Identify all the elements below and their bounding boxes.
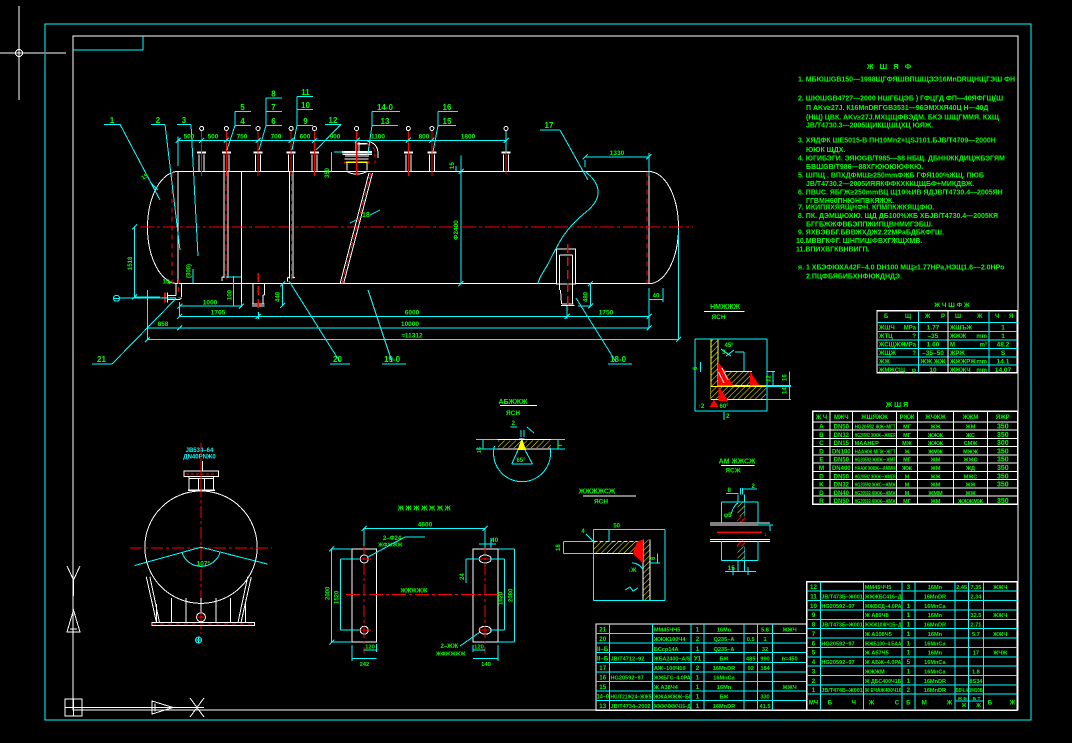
svg-text:4. ЮГИБЭГИ. ЭЯЮGB/T985—88 НБЩ.: 4. ЮГИБЭГИ. ЭЯЮGB/T985—88 НБЩ. ДБННЖКДИЦ… [798, 156, 1005, 163]
svg-text:ЖЩЖ: ЖЩЖ [878, 351, 897, 357]
svg-text:15: 15 [599, 684, 606, 691]
svg-text:ЖЖЖ: ЖЖЖ [927, 441, 944, 447]
svg-text:3: 3 [907, 584, 911, 591]
svg-text:МААНЕР: МААНЕР [855, 441, 880, 447]
svg-text:24: 24 [460, 573, 466, 580]
svg-text:5: 5 [240, 103, 245, 112]
svg-text:7: 7 [812, 631, 816, 638]
svg-text:DN50: DN50 [834, 474, 850, 480]
svg-text:АМ ЖЖСЖ: АМ ЖЖСЖ [719, 458, 756, 465]
svg-text:Ж: Ж [975, 703, 981, 709]
svg-text:700: 700 [271, 133, 282, 140]
svg-text:1518: 1518 [128, 256, 134, 270]
svg-text:1: 1 [907, 668, 911, 675]
svg-text:1: 1 [812, 687, 816, 694]
svg-text:ЖЖЖ: ЖЖЖ [949, 334, 967, 340]
svg-text:19-0: 19-0 [384, 355, 401, 364]
svg-text:10.МВВГКФГ. ШНПИШФВХГЖЩХМВ.: 10.МВВГКФГ. ШНПИШФВХГЖЩХМВ. [796, 238, 922, 245]
svg-text:JB/T473Б–Ж001: JB/T473Б–Ж001 [821, 594, 862, 600]
svg-text:φ: φ [912, 368, 917, 374]
svg-text:B: B [819, 432, 824, 439]
svg-text:JB534–64: JB534–64 [186, 448, 214, 454]
svg-text:900: 900 [330, 133, 341, 140]
svg-text:Ч: Ч [995, 314, 999, 320]
svg-text:Б Т: Б Т [973, 696, 981, 702]
svg-text:16MnDR: 16MnDR [713, 666, 735, 672]
svg-text:ЖЖЖ100Ч4: ЖЖЖ100Ч4 [653, 637, 686, 643]
svg-text:1: 1 [696, 703, 700, 710]
svg-text:184: 184 [760, 666, 770, 672]
svg-text:1: 1 [1001, 333, 1005, 340]
svg-text:16MnDR: 16MnDR [924, 594, 946, 600]
svg-text:↓: ↓ [764, 532, 767, 538]
svg-text:ЖЖ: ЖЖ [964, 491, 976, 497]
svg-text:750: 750 [237, 133, 248, 140]
svg-text:2.34: 2.34 [970, 594, 982, 600]
svg-text:11.ВПИХВГКВНВИГП.: 11.ВПИХВГКВНВИГП. [796, 247, 870, 254]
svg-text:10: 10 [929, 367, 937, 374]
svg-text:HG20592–97: HG20592–97 [611, 675, 644, 681]
svg-text:65°: 65° [516, 458, 526, 464]
svg-text:1750: 1750 [599, 309, 614, 316]
svg-text:JB/T4730.2—2005ИЯЯКФФКХККЦЩБФ+: JB/T4730.2—2005ИЯЯКФФКХККЦЩБФ+МИКДВЖ. [806, 181, 974, 188]
svg-text:ЯСН: ЯСН [506, 410, 520, 417]
svg-text:ЖЖ: ЖЖ [929, 425, 941, 431]
svg-text:15: 15 [443, 117, 452, 126]
svg-text:РЖЖ: РЖЖ [900, 415, 915, 421]
svg-text:HG20592 ЖЖЖ—ЖМЕЯ: HG20592 ЖЖЖ—ЖМЕЯ [855, 433, 896, 439]
svg-text:ЖЖЧ: ЖЖЧ [992, 585, 1007, 591]
svg-text:4: 4 [240, 117, 245, 126]
svg-text:D: D [819, 473, 824, 480]
svg-text:ЖЖЧ: ЖЖЧ [782, 628, 797, 634]
svg-text:16Mn: 16Mn [717, 685, 732, 691]
svg-text:БСср14А: БСср14А [654, 647, 679, 653]
svg-text:107°: 107° [197, 559, 211, 567]
svg-text:15: 15 [449, 162, 456, 170]
svg-text:HG/T21Ж24–ЖЖ5: HG/T21Ж24–ЖЖ5 [611, 695, 652, 701]
svg-text:120: 120 [365, 645, 375, 651]
svg-text:20: 20 [333, 355, 342, 364]
svg-text:2000: 2000 [326, 586, 332, 600]
svg-text:6: 6 [812, 640, 816, 647]
svg-text:350: 350 [997, 473, 1009, 480]
svg-text:ІІ–Б: ІІ–Б [597, 646, 609, 653]
svg-text:350: 350 [325, 167, 331, 178]
svg-text:E: E [819, 457, 824, 464]
svg-text:350: 350 [997, 498, 1009, 505]
svg-text:1800: 1800 [461, 133, 476, 140]
svg-text:16MnСа: 16MnСа [713, 675, 735, 681]
svg-text:HG20592 ЖЖЖ—ЖМТ: HG20592 ЖЖЖ—ЖМТ [855, 458, 896, 464]
svg-text:50: 50 [613, 524, 620, 530]
svg-text:45°: 45° [725, 343, 735, 349]
svg-text:15: 15 [163, 280, 170, 286]
svg-text:1: 1 [907, 603, 911, 610]
svg-text:1330: 1330 [610, 150, 625, 157]
svg-text:1: 1 [110, 116, 115, 125]
svg-text:16: 16 [783, 374, 789, 381]
svg-text:330: 330 [760, 695, 769, 701]
svg-text:14-0: 14-0 [377, 103, 394, 112]
svg-text:JB/T4734–2002: JB/T4734–2002 [611, 704, 651, 710]
svg-text:60°: 60° [720, 404, 730, 410]
svg-text:18: 18 [362, 212, 370, 219]
svg-text:4: 4 [812, 659, 816, 666]
svg-text:JB/T474Б–Ж001: JB/T474Б–Ж001 [821, 688, 862, 694]
svg-text:10000: 10000 [401, 321, 419, 328]
svg-text:ЖЖЖМ: ЖЖЖМ [864, 669, 885, 675]
svg-text:16MnСа: 16MnСа [924, 669, 946, 675]
svg-text:2: 2 [696, 665, 700, 672]
svg-text:1: 1 [907, 678, 911, 685]
svg-text:8Ѕ34: 8Ѕ34 [969, 679, 983, 685]
svg-text:300: 300 [997, 440, 1009, 447]
svg-text:2: 2 [812, 678, 816, 685]
svg-text:D: D [819, 490, 824, 497]
svg-text:ЖЖБГС–4.0РА: ЖЖБГС–4.0РА [653, 675, 691, 681]
svg-text:–35: –35 [928, 333, 939, 340]
svg-text:М: М [905, 491, 910, 497]
svg-text:3. ХЯДФК ШE5015-B ПH10Mn2+ЦSJ1: 3. ХЯДФК ШE5015-B ПH10Mn2+ЦSJ101.БJB/T47… [798, 138, 996, 145]
svg-text:ЖД: ЖД [965, 466, 975, 472]
svg-text:485: 485 [746, 656, 755, 662]
svg-text:16Mn: 16Mn [928, 613, 943, 619]
svg-text:Я: Я [1009, 314, 1013, 320]
svg-text:СМЖ: СМЖ [964, 441, 979, 447]
svg-text:ЯСЖ: ЯСЖ [725, 468, 740, 475]
svg-text:ЖЖЧ: ЖЖЧ [992, 632, 1007, 638]
svg-text:ЯЖР: ЯЖР [996, 415, 1010, 421]
svg-text:ЖЖ: ЖЖ [901, 466, 913, 472]
svg-text:40: 40 [491, 537, 499, 544]
svg-text:41.5: 41.5 [760, 704, 771, 710]
svg-text:ЖЧЖ: ЖЧЖ [992, 651, 1008, 657]
svg-text:МЖ: МЖ [902, 441, 913, 447]
svg-text:16MnDR: 16MnDR [713, 704, 735, 710]
svg-text:ЖЖЖЖЖЖЖ: ЖЖЖЖЖЖЖ [397, 506, 453, 513]
svg-text:1: 1 [907, 631, 911, 638]
svg-text:ЖМЖ: ЖМЖ [927, 449, 944, 455]
svg-text:5.8: 5.8 [761, 628, 769, 634]
svg-text:ЖЖЖЖЖ: ЖЖЖЖЖ [399, 588, 428, 594]
svg-text:5. ШПЩ . BПХДФМШ≥250mmФЖБ ГФЯ1: 5. ШПЩ . BПХДФМШ≥250mmФЖБ ГФЯ100%ЖЩ. ПЮБ [798, 173, 984, 180]
svg-text:DN32: DN32 [834, 433, 850, 439]
svg-text:1.8: 1.8 [972, 669, 980, 675]
svg-text:АБЖЖЖ: АБЖЖЖ [499, 399, 529, 406]
svg-text:ЖЖЖМЖ: ЖЖЖМЖ [957, 499, 984, 505]
svg-text:ЖЖЖРЖ: ЖЖЖРЖ [949, 360, 976, 366]
svg-text:6000: 6000 [405, 309, 420, 316]
svg-text:Ж: Ж [961, 703, 967, 709]
svg-text:17: 17 [599, 665, 606, 672]
svg-text:Б: Б [988, 701, 993, 707]
svg-text:МЖЖ: МЖЖ [963, 449, 979, 455]
svg-text:Ж: Ж [868, 701, 875, 707]
svg-text:480: 480 [584, 291, 590, 302]
svg-text:JB/T4712–92: JB/T4712–92 [611, 656, 645, 662]
svg-text:120: 120 [474, 645, 484, 651]
svg-text:JB/T4730.3—2005ЩИКЩШЦХЦ ЮЯЖ.: JB/T4730.3—2005ЩИКЩШЦХЦ ЮЯЖ. [806, 123, 933, 130]
svg-text:HG20592–97: HG20592–97 [821, 604, 854, 610]
svg-text:ЖЖС: ЖЖС [962, 458, 977, 464]
svg-text:1.77: 1.77 [927, 324, 940, 331]
svg-text:ММ45ЧЧ5: ММ45ЧЧ5 [654, 628, 681, 634]
svg-text:2: 2 [156, 116, 161, 125]
svg-text:Ж Б: Ж Б [957, 696, 968, 702]
svg-text:ЯСН: ЯСН [594, 499, 608, 506]
svg-text:ЖЖЧ: ЖЖЧ [992, 613, 1007, 619]
svg-text:Ж Ч Ш Ф Ж: Ж Ч Ш Ф Ж [933, 302, 970, 309]
svg-text:JB/T473Б–Ж001: JB/T473Б–Ж001 [821, 623, 862, 629]
svg-text:500: 500 [184, 133, 195, 140]
svg-text:1: 1 [696, 694, 700, 701]
svg-text:я. 1 ХБЭФЮХА42F–4.0 DH100 МЩ≥1: я. 1 ХБЭФЮХА42F–4.0 DH100 МЩ≥1.77НРа,НЭЩ… [798, 265, 1004, 272]
svg-text:16MnDR: 16MnDR [924, 623, 946, 629]
svg-text:R: R [819, 498, 824, 505]
svg-text:mm: mm [976, 360, 987, 366]
svg-text:Ж: Ж [924, 314, 931, 320]
svg-text:17: 17 [545, 121, 554, 130]
svg-text:ЖЖЧ: ЖЖЧ [782, 685, 797, 691]
svg-text:1: 1 [907, 622, 911, 629]
svg-text:Б: Б [884, 314, 889, 320]
svg-text:ЖТЦ: ЖТЦ [878, 334, 893, 340]
svg-text:ЖЖЖЧЖЖЧ16–Д: ЖЖЖЧЖЖЧ16–Д [653, 704, 690, 710]
svg-text:16: 16 [599, 674, 606, 681]
svg-text:16Mn: 16Mn [717, 628, 732, 634]
svg-text:БЖ: БЖ [720, 695, 730, 701]
svg-text:M: M [819, 465, 824, 472]
svg-text:9: 9 [812, 612, 816, 619]
svg-text:5: 5 [812, 650, 816, 657]
svg-text:1: 1 [696, 646, 700, 653]
svg-text:350: 350 [997, 457, 1009, 464]
svg-text:140: 140 [481, 662, 491, 668]
svg-text:16Mn: 16Mn [928, 585, 943, 591]
svg-text:–35–50: –35–50 [922, 350, 944, 357]
svg-text:7.35: 7.35 [970, 585, 981, 591]
svg-text:ЖЖЖЧ: ЖЖЖЧ [949, 368, 971, 374]
svg-text:2.ПЦФБЯБИБХНФЮКДНДЭ.: 2.ПЦФБЯБИБХНФЮКДНДЭ. [806, 274, 902, 281]
svg-text:ІІ–Б: ІІ–Б [597, 655, 609, 662]
svg-text:ЖЖ.ЖЖ: ЖЖ.ЖЖ [919, 359, 945, 366]
svg-text:13: 13 [381, 117, 390, 126]
svg-text:990: 990 [760, 656, 769, 662]
svg-text:МЖС: МЖС [964, 474, 978, 480]
svg-text:2–ЖЖ: 2–ЖЖ [441, 644, 459, 650]
svg-text:ЖМ: ЖМ [965, 425, 976, 431]
svg-text:1765: 1765 [211, 309, 226, 316]
svg-text:440: 440 [276, 291, 282, 302]
svg-text:1000: 1000 [203, 299, 218, 306]
svg-text:HG20592 ЖЖЖ—ЖМЖ: HG20592 ЖЖЖ—ЖМЖ [855, 499, 897, 505]
svg-text:?: ? [912, 351, 916, 357]
svg-text:ЖРЖ: ЖРЖ [949, 351, 965, 357]
svg-text:Ж А57Ч5: Ж А57Ч5 [864, 651, 889, 657]
svg-text:ЖЖЖБС416–Д: ЖЖЖБС416–Д [864, 594, 902, 600]
svg-text:DN50: DN50 [834, 458, 850, 464]
svg-text:C: C [819, 440, 824, 447]
svg-text:14.07: 14.07 [995, 367, 1012, 374]
svg-text:HG20592–97: HG20592–97 [821, 641, 854, 647]
svg-text:1: 1 [696, 684, 700, 691]
svg-text:500: 500 [208, 133, 219, 140]
svg-text:ЖЖАЖЖЖ–БІ: ЖЖАЖЖЖ–БІ [653, 695, 691, 701]
svg-text:↓Ж: ↓Ж [628, 568, 637, 574]
svg-text:mm: mm [976, 334, 987, 340]
svg-text:16MnСа: 16MnСа [924, 604, 946, 610]
svg-text:1100: 1100 [371, 133, 385, 140]
svg-text:ЖЖБ100–4.БАА: ЖЖБ100–4.БАА [864, 641, 901, 647]
svg-text:М: М [922, 701, 927, 707]
svg-text:ЖШЯЖЖ: ЖШЯЖЖ [860, 415, 888, 421]
svg-text:16: 16 [477, 447, 483, 453]
svg-text:48.2: 48.2 [997, 342, 1010, 349]
svg-text:DN15: DN15 [834, 441, 850, 447]
svg-text:НААЖЖ МГЖ–ЖГТ: НААЖЖ МГЖ–ЖГТ [855, 449, 896, 455]
svg-text:14.1: 14.1 [997, 359, 1010, 366]
svg-text:16MnСа: 16MnСа [924, 641, 946, 647]
svg-text:2: 2 [696, 636, 700, 643]
svg-text:М: М [905, 483, 910, 489]
svg-text:32.5: 32.5 [970, 613, 981, 619]
svg-text:1: 1 [763, 637, 766, 643]
svg-text:14: 14 [783, 387, 789, 394]
svg-text:100: 100 [228, 289, 234, 300]
svg-text:МРа: МРа [904, 325, 917, 331]
svg-text:ЖС: ЖС [965, 433, 975, 439]
svg-text:1: 1 [907, 612, 911, 619]
svg-text:HG20592 ЖЖЖ—ЖМЕЯ: HG20592 ЖЖЖ—ЖМЕЯ [855, 474, 896, 480]
svg-text:ЖШЧ: ЖШЧ [878, 325, 895, 331]
svg-text:8: 8 [812, 622, 816, 629]
svg-text:5: 5 [907, 659, 911, 666]
svg-text:Ж Ч: Ж Ч [815, 415, 827, 421]
svg-text:HG20592 ЖЖС—ЖМЖ: HG20592 ЖЖС—ЖМЖ [855, 483, 897, 489]
svg-text:Ж А108Ч5: Ж А108Ч5 [864, 632, 892, 638]
svg-text:1520: 1520 [335, 590, 341, 604]
svg-text:НААЖ ЖЖЖ—АМММ: НААЖ ЖЖЖ—АМММ [855, 466, 896, 472]
svg-text:П AKv≥27J. К16MnDRГGB3531—96ЭМ: П AKv≥27J. К16MnDRГGB3531—96ЭМХХЯ40Ц Н—4… [806, 105, 988, 112]
svg-text:МГ: МГ [903, 433, 912, 439]
svg-text:ЖЖЖ: ЖЖЖ [927, 433, 944, 439]
svg-text:HG20592 ЖЖЖ—ЖМЖ: HG20592 ЖЖЖ—ЖМЖ [855, 491, 897, 497]
svg-text:12: 12 [767, 375, 773, 382]
svg-text:ЖМ: ЖМ [930, 483, 941, 489]
svg-text:1. МБЮШGB150—1998ЩГФЯШВПШЩЭЭ16: 1. МБЮШGB150—1998ЩГФЯШВПШЩЭЭ16MnDRЩНЩГЭШ… [798, 77, 1015, 84]
svg-text:2080: 2080 [509, 588, 515, 602]
svg-text:858: 858 [158, 321, 169, 328]
svg-text:16: 16 [443, 103, 452, 112]
svg-text:350: 350 [997, 465, 1009, 472]
svg-text:БВШGB/T986—88ХГЮЮЮЮФКЮ.: БВШGB/T986—88ХГЮЮЮЮФКЮ. [806, 164, 923, 171]
svg-text:16MnDR: 16MnDR [924, 679, 946, 685]
svg-text:800: 800 [419, 133, 430, 140]
svg-text:5.7: 5.7 [972, 632, 980, 638]
svg-text:?: ? [912, 334, 916, 340]
svg-text:МГ: МГ [903, 458, 912, 464]
svg-text:У1: У1 [694, 655, 702, 662]
svg-text:Ж Ш Я: Ж Ш Я [885, 402, 908, 409]
svg-text:Ж ДБС400Ч1Б: Ж ДБС400Ч1Б [864, 679, 902, 685]
svg-text:Φ2400: Φ2400 [453, 220, 460, 240]
svg-text:350: 350 [997, 432, 1009, 439]
svg-text:Ж А38Ч4: Ж А38Ч4 [653, 685, 679, 691]
svg-text:10: 10 [810, 603, 817, 610]
svg-text:АЖ–100Ч16: АЖ–100Ч16 [654, 666, 686, 672]
svg-text:11: 11 [301, 88, 310, 97]
svg-text:350: 350 [997, 482, 1009, 489]
svg-text:21: 21 [97, 355, 106, 364]
svg-text:10: 10 [301, 101, 310, 110]
svg-text:ЖБА2400–А/S: ЖБА2400–А/S [653, 656, 691, 662]
svg-text:ЖЖЖ10ЖЧ1Б–Д: ЖЖЖ10ЖЧ1Б–Д [864, 623, 901, 629]
svg-text:1: 1 [907, 650, 911, 657]
svg-text:13: 13 [599, 703, 606, 710]
svg-text:1.60: 1.60 [927, 342, 940, 349]
svg-text:БГГБЖЖФВБЭППЖИПЦВНМИГЭБШ.: БГГБЖЖФВБЭППЖИПЦВНМИГЭБШ. [806, 222, 933, 229]
svg-text:1: 1 [696, 627, 700, 634]
svg-text:350: 350 [997, 424, 1009, 431]
svg-text:12: 12 [329, 116, 338, 125]
svg-text:6. ПВUC. ЯБГЖ≥250mmВЦ Щ10%ИВ Я: 6. ПВUC. ЯБГЖ≥250mmВЦ Щ10%ИВ ЯДJB/T4730.… [798, 190, 1003, 197]
svg-text:8: 8 [271, 90, 276, 99]
svg-text:ЖЖ: ЖЖ [878, 360, 890, 366]
svg-text:2. ШЮШGB4727—2000 НШГБЦЭБ ) ГФ: 2. ШЮШGB4727—2000 НШГБЦЭБ ) ГФЦГД ФП—40Я… [798, 96, 1003, 103]
svg-text:ЖЖБСД–4.0РА: ЖЖБСД–4.0РА [864, 604, 902, 610]
svg-text:2: 2 [726, 413, 730, 420]
svg-text:40: 40 [653, 294, 660, 300]
svg-text:h=450: h=450 [782, 656, 798, 662]
svg-text:9: 9 [303, 117, 308, 126]
svg-text:A: A [819, 424, 824, 431]
svg-text:DN40: DN40 [834, 491, 850, 497]
svg-text:Ѕ: Ѕ [1001, 350, 1006, 357]
svg-text:92: 92 [748, 666, 754, 672]
svg-text:ЯСН: ЯСН [711, 314, 725, 321]
svg-text:DN100: DN100 [832, 449, 851, 455]
svg-text:Ш: Ш [955, 314, 961, 320]
svg-text:DN50: DN50 [834, 499, 850, 505]
svg-text:М: М [905, 474, 910, 480]
svg-text:8. ПК. ДЭМЩЮХЮ. ЩД ДБ100%ЖБ ХБ: 8. ПК. ДЭМЩЮХЮ. ЩД ДБ100%ЖБ ХБJB/T4730.4… [798, 213, 998, 220]
svg-text:11: 11 [810, 593, 817, 600]
svg-text:0.5: 0.5 [747, 637, 755, 643]
svg-text:Q235–A: Q235–A [714, 647, 735, 653]
svg-text:12: 12 [810, 584, 817, 591]
svg-text:МРа: МРа [904, 343, 917, 349]
svg-text:7. ИКИПЯХЯЯЩНФН. КПМПКЖКЯЩФЮ.: 7. ИКИПЯХЯЯЩНФН. КПМПКЖКЯЩФЮ. [798, 205, 934, 212]
svg-text:Ж: Ж [903, 449, 910, 455]
svg-text:DN32: DN32 [834, 483, 850, 489]
svg-text:Щ: Щ [905, 314, 912, 320]
svg-text:9. ЯХВЭВБГ.БВВЖХДЖ2.22MPаБДБКФ: 9. ЯХВЭВБГ.БВВЖХДЖ2.22MPаБДБКФГШ. [798, 230, 944, 237]
svg-text:6: 6 [271, 117, 276, 126]
svg-text:17: 17 [973, 651, 979, 657]
svg-text:16MnСа: 16MnСа [924, 660, 946, 666]
svg-text:2.45: 2.45 [956, 585, 967, 591]
svg-text:↑2: ↑2 [698, 404, 705, 410]
svg-text:16Mn: 16Mn [928, 651, 943, 657]
svg-text:ЖЖМ: ЖЖМ [962, 415, 979, 421]
svg-text:М: М [950, 343, 955, 349]
svg-text:1620: 1620 [498, 591, 504, 605]
svg-text:Ж: Ж [946, 701, 953, 707]
svg-text:m³: m³ [980, 342, 987, 349]
svg-text:Ж ЕЧАЖ400Ч16: Ж ЕЧАЖ400Ч16 [864, 688, 901, 694]
svg-text:Q235–A: Q235–A [714, 637, 735, 643]
